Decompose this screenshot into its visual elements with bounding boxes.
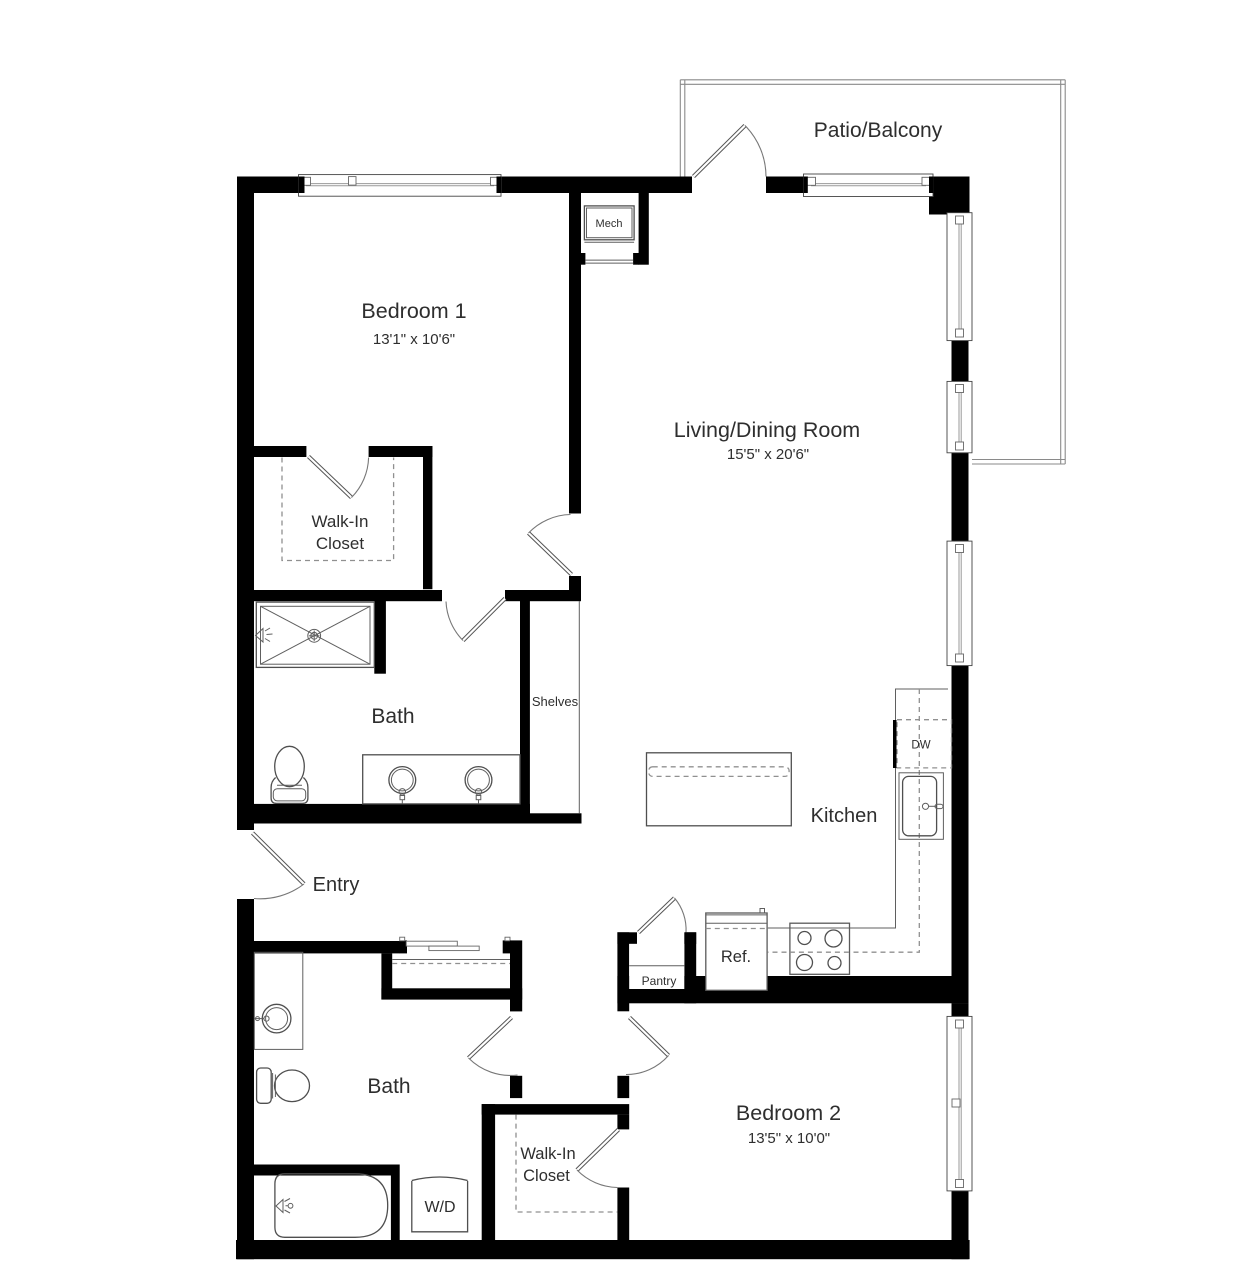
svg-text:Bedroom 2: Bedroom 2 [736, 1101, 841, 1125]
svg-text:DW: DW [911, 740, 930, 752]
svg-text:Kitchen: Kitchen [811, 805, 878, 827]
svg-text:Bath: Bath [371, 705, 414, 728]
svg-text:Closet: Closet [523, 1167, 570, 1185]
svg-text:Bedroom 1: Bedroom 1 [361, 299, 466, 323]
svg-text:13'5" x 10'0": 13'5" x 10'0" [748, 1130, 830, 1147]
svg-text:Patio/Balcony: Patio/Balcony [814, 119, 943, 142]
svg-text:Living/Dining Room: Living/Dining Room [674, 418, 860, 442]
svg-text:Closet: Closet [316, 534, 364, 553]
svg-text:Bath: Bath [367, 1075, 410, 1098]
svg-text:Shelves: Shelves [532, 694, 579, 709]
svg-text:Mech: Mech [596, 218, 623, 230]
svg-text:Walk-In: Walk-In [520, 1145, 575, 1163]
svg-text:W/D: W/D [424, 1199, 455, 1216]
svg-text:13'1" x 10'6": 13'1" x 10'6" [373, 331, 455, 348]
svg-text:Entry: Entry [313, 874, 360, 896]
svg-text:15'5" x 20'6": 15'5" x 20'6" [727, 446, 809, 463]
svg-text:Walk-In: Walk-In [312, 512, 369, 531]
svg-text:Pantry: Pantry [642, 974, 677, 988]
svg-text:Ref.: Ref. [721, 948, 751, 966]
